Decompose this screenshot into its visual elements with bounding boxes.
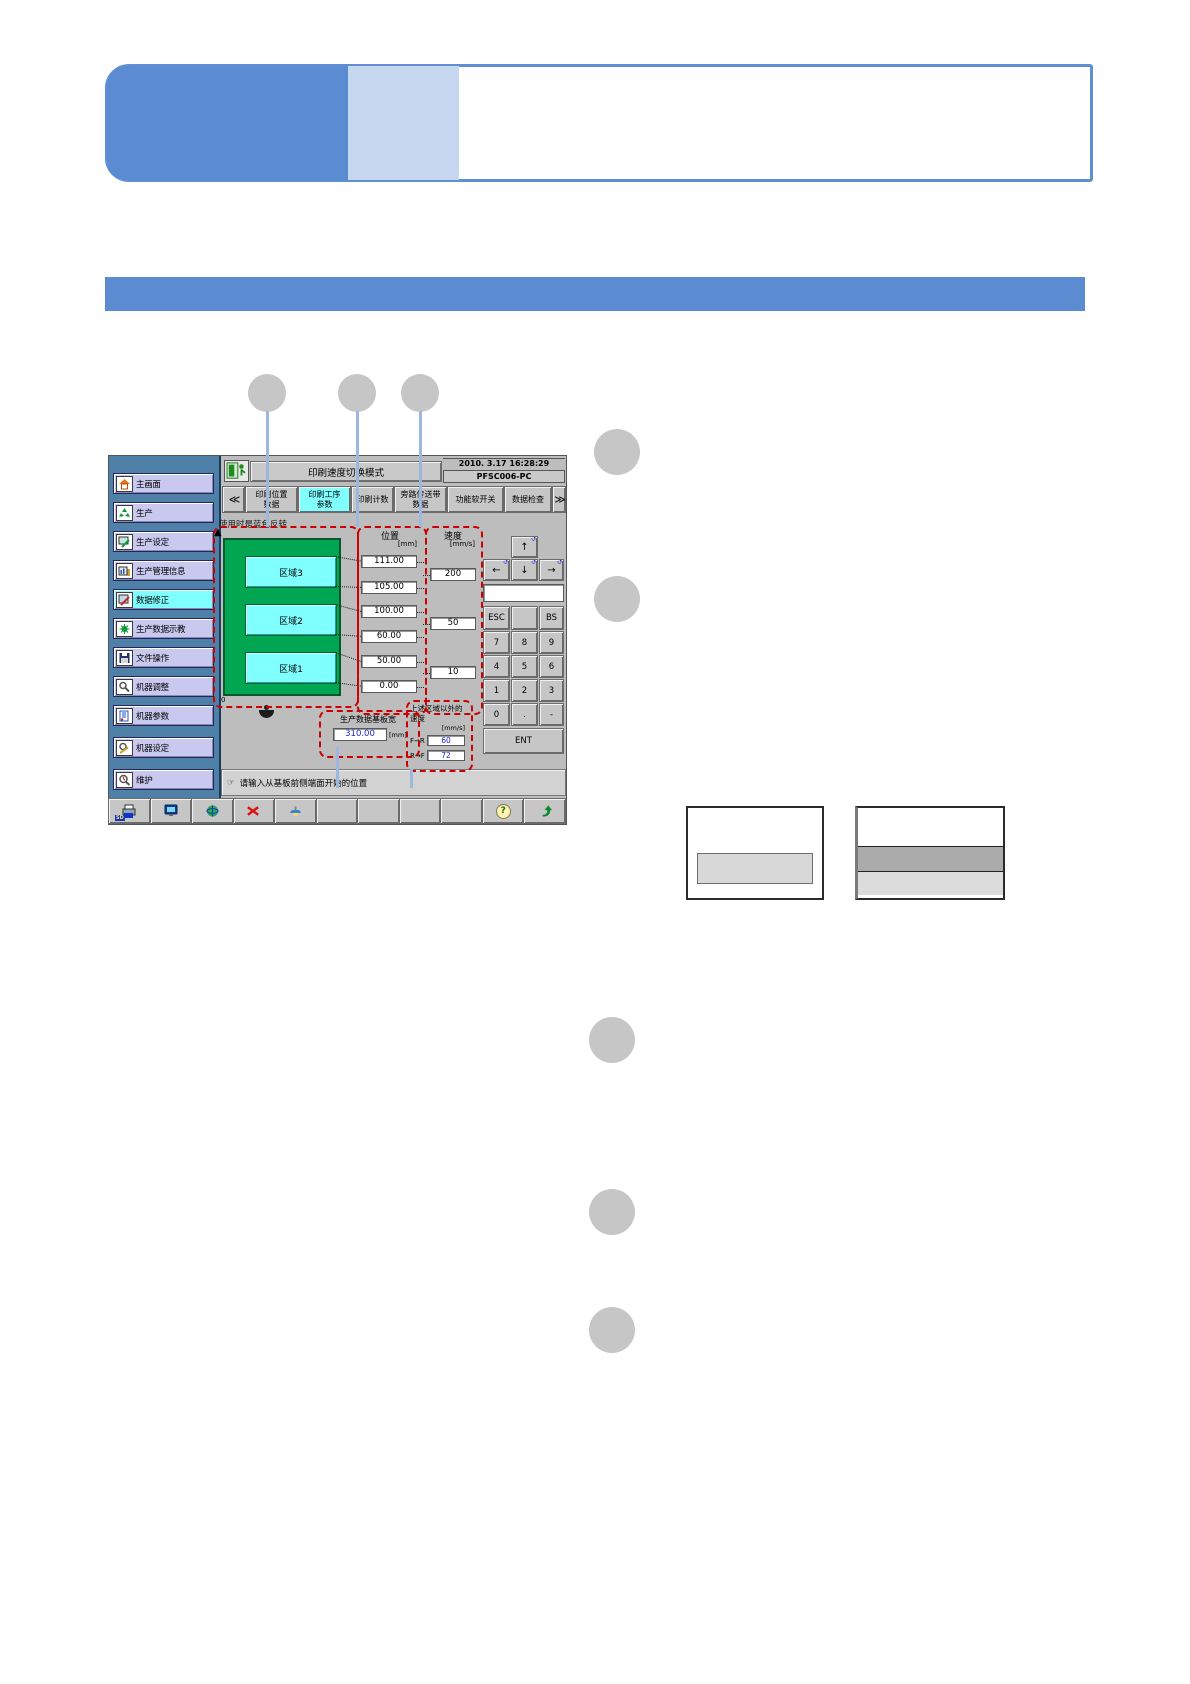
tab-data-check[interactable]: 数据检查	[504, 486, 552, 513]
tabs-prev-button[interactable]: ≪	[222, 486, 245, 513]
sidebar-item-maintenance[interactable]: 维护	[113, 769, 214, 790]
digit-2-key[interactable]: 2	[511, 679, 538, 702]
production-info-chart-icon	[116, 563, 133, 579]
callout-circle-5	[594, 576, 640, 622]
section-title-bar	[105, 277, 1085, 311]
sidebar-item-label: 机器参数	[136, 710, 169, 722]
arrow-right-key[interactable]: →	[539, 559, 564, 581]
toolbar-network-button[interactable]	[191, 798, 234, 824]
status-message: 请输入从基板前侧端面开始的位置	[240, 777, 368, 789]
callout-box-outside-speed	[406, 700, 473, 772]
digit-7-key[interactable]: 7	[483, 631, 510, 654]
sidebar-item-machine-settings[interactable]: 机器设定	[113, 737, 214, 758]
tab-label: 印刷工序	[309, 490, 341, 500]
callout-circle-8	[589, 1017, 635, 1063]
digit-0-key[interactable]: 0	[483, 703, 510, 726]
sidebar-item-machine-params[interactable]: 机器参数	[113, 705, 214, 726]
legend-box-row-styles	[855, 806, 1005, 900]
tabs-next-button[interactable]: ≫	[552, 486, 566, 513]
legend-row-white	[858, 808, 1003, 846]
maintenance-clock-icon	[116, 772, 133, 788]
tab-label: 参数	[317, 500, 333, 510]
arrow-down-key[interactable]: ↓	[511, 559, 538, 581]
toolbar-help-button[interactable]: ?	[482, 798, 525, 824]
globe-icon	[205, 804, 220, 818]
enter-key[interactable]: ENT	[483, 728, 564, 754]
callout-circle-9	[589, 1189, 635, 1235]
sidebar-item-label: 生产管理信息	[136, 565, 185, 577]
blank-key[interactable]	[511, 606, 538, 630]
production-settings-icon	[116, 534, 133, 550]
manual-page: 主画面 生产 生产设定 生产管理信息 数据修正 生产数据示教 文件操作 机器调	[0, 0, 1190, 1684]
next-chevrons-icon: ≫	[554, 495, 564, 505]
sd-card-icon: SD	[115, 815, 125, 821]
sidebar-item-label: 维护	[136, 774, 152, 786]
tab-function-soft-switch[interactable]: 功能软开关	[447, 486, 504, 513]
digit-1-key[interactable]: 1	[483, 679, 510, 702]
lamp-icon	[288, 804, 303, 818]
return-arrow-icon	[537, 804, 552, 818]
exit-screen-icon[interactable]	[224, 460, 249, 482]
header-banner-light-block	[348, 66, 459, 180]
callout-circle-2	[338, 374, 376, 412]
bottom-toolbar: SD ?	[109, 798, 566, 824]
tab-label: 印刷位置	[256, 490, 288, 500]
sidebar-item-label: 生产数据示教	[136, 623, 185, 635]
magnifier-icon	[116, 679, 133, 695]
data-correction-icon	[116, 592, 133, 608]
sidebar-item-label: 文件操作	[136, 652, 169, 664]
digit-8-key[interactable]: 8	[511, 631, 538, 654]
tab-label: 数据检查	[512, 495, 544, 505]
legend-box-input-field	[686, 806, 824, 900]
sidebar-item-label: 主画面	[136, 478, 161, 490]
sidebar-item-machine-adjust[interactable]: 机器调整	[113, 676, 214, 697]
callout-circle-1	[248, 374, 286, 412]
sidebar-item-label: 生产	[136, 507, 152, 519]
toolbar-tools-disabled-button[interactable]	[233, 798, 276, 824]
tab-print-position-data[interactable]: 印刷位置数据	[245, 486, 298, 513]
tab-print-process-params[interactable]: 印刷工序参数	[298, 486, 351, 513]
toolbar-empty-cell-2[interactable]	[357, 798, 400, 824]
decimal-point-key[interactable]: .	[511, 703, 538, 726]
arrow-up-key[interactable]: ↑	[511, 536, 538, 558]
sidebar-item-data-correction[interactable]: 数据修正	[113, 589, 214, 610]
tab-label: 印刷计数	[357, 495, 389, 505]
callout-line-4	[336, 747, 339, 788]
teaching-gear-icon	[116, 621, 133, 637]
legend-row-dark-gray	[858, 846, 1003, 871]
status-bar: ☞ 请输入从基板前侧端面开始的位置	[221, 769, 566, 796]
prev-chevrons-icon: ≪	[229, 495, 239, 505]
help-icon: ?	[496, 804, 511, 819]
toolbar-empty-cell-3[interactable]	[399, 798, 442, 824]
minus-key[interactable]: -	[539, 703, 564, 726]
tab-label: 功能软开关	[456, 495, 496, 505]
backspace-key[interactable]: BS	[539, 606, 564, 630]
sidebar-item-main-screen[interactable]: 主画面	[113, 473, 214, 494]
monitor-icon	[163, 804, 179, 818]
callout-circle-4	[594, 429, 640, 475]
toolbar-print-sd-button[interactable]: SD	[108, 798, 151, 824]
callout-line-1	[266, 411, 269, 527]
sidebar-item-production[interactable]: 生产	[113, 502, 214, 523]
callout-box-base-width	[319, 710, 420, 758]
legend-row-light-gray	[858, 871, 1003, 895]
keypad-input-field[interactable]	[483, 584, 564, 602]
callout-line-3	[419, 411, 422, 527]
sidebar-item-file-operation[interactable]: 文件操作	[113, 647, 214, 668]
legend-input-field-sample	[697, 853, 813, 884]
header-banner	[105, 64, 1093, 182]
toolbar-empty-cell-4[interactable]	[440, 798, 483, 824]
esc-key[interactable]: ESC	[483, 606, 510, 630]
parameter-sheet-icon	[116, 708, 133, 724]
callout-circle-10	[589, 1307, 635, 1353]
sidebar-item-label: 生产设定	[136, 536, 169, 548]
callout-box-speed	[425, 526, 483, 715]
sidebar-item-production-mgmt-info[interactable]: 生产管理信息	[113, 560, 214, 581]
toolbar-return-button[interactable]	[523, 798, 566, 824]
digit-9-key[interactable]: 9	[539, 631, 564, 654]
device-name-display: PFSC006-PC	[443, 470, 565, 483]
toolbar-lamp-button[interactable]	[274, 798, 317, 824]
digit-3-key[interactable]: 3	[539, 679, 564, 702]
toolbar-empty-cell-1[interactable]	[316, 798, 359, 824]
callout-line-2	[356, 411, 359, 527]
production-recycle-icon	[116, 505, 133, 521]
sidebar-item-label: 数据修正	[136, 594, 169, 606]
digit-5-key[interactable]: 5	[511, 655, 538, 678]
sidebar-item-label: 机器设定	[136, 742, 169, 754]
arrow-left-key[interactable]: ←	[483, 559, 510, 581]
digit-6-key[interactable]: 6	[539, 655, 564, 678]
sidebar-item-production-data-teaching[interactable]: 生产数据示教	[113, 618, 214, 639]
callout-box-diagram	[213, 526, 359, 708]
sidebar-item-production-settings[interactable]: 生产设定	[113, 531, 214, 552]
screen-title: 印刷速度切换模式	[250, 461, 442, 482]
sidebar-item-label: 机器调整	[136, 681, 169, 693]
rotate-view-icon	[259, 710, 274, 718]
home-icon	[116, 476, 133, 492]
header-banner-dark-block	[107, 66, 348, 180]
callout-circle-3	[401, 374, 439, 412]
digit-4-key[interactable]: 4	[483, 655, 510, 678]
floppy-disk-icon	[116, 650, 133, 666]
callout-line-5	[410, 769, 413, 788]
callout-box-position	[357, 526, 427, 715]
hand-pointer-icon: ☞	[227, 778, 235, 788]
magnifier-pencil-icon	[116, 740, 133, 756]
toolbar-monitor-button[interactable]	[150, 798, 193, 824]
tools-disabled-icon	[246, 804, 261, 818]
exit-door-figure-icon	[226, 462, 247, 480]
